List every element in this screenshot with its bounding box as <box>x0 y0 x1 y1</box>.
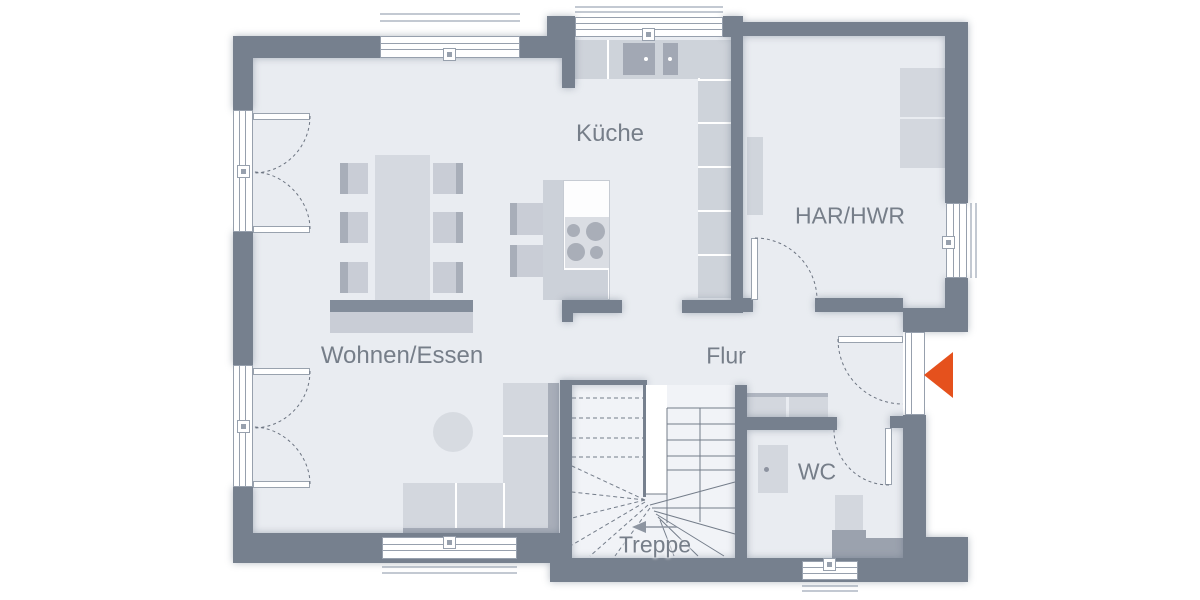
walls-layer <box>0 0 1200 600</box>
room-label-kueche: Küche <box>576 120 644 148</box>
wall-exterior-left-a <box>233 36 253 110</box>
wall-exterior-top-kitchen <box>723 16 743 37</box>
floor-plan: Küche HAR/HWR Wohnen/Essen Flur WC Trepp… <box>0 0 1200 600</box>
window-handle <box>443 48 456 61</box>
door-leaf <box>253 226 310 233</box>
wall-har-bottom <box>815 298 903 312</box>
stair-well <box>646 385 667 494</box>
wall-wc-top <box>747 417 837 430</box>
har-door-leaf <box>751 238 758 300</box>
room-label-har-hwr: HAR/HWR <box>795 203 905 230</box>
door-leaf <box>253 113 310 120</box>
wc-door-leaf <box>885 428 892 485</box>
door-handle <box>237 420 250 433</box>
room-label-wohnen-essen: Wohnen/Essen <box>321 342 483 370</box>
wall-step-kitchen <box>547 16 575 58</box>
room-label-treppe: Treppe <box>619 532 691 559</box>
room-label-wc: WC <box>798 459 836 486</box>
entrance-door-leaf <box>838 336 903 343</box>
wall-exterior-entry-below <box>903 415 926 537</box>
entrance-door-frame <box>905 332 925 415</box>
window-handle <box>443 536 456 549</box>
wall-kitchen-stub <box>562 313 573 322</box>
window-handle <box>823 558 836 571</box>
wall-staircase-right <box>735 385 747 563</box>
wall-return <box>562 58 575 88</box>
wall-wc-door-stub <box>890 416 903 428</box>
window-handle <box>642 28 655 41</box>
wall-kitchen-har <box>731 37 743 300</box>
wall-exterior-left-b <box>233 232 253 365</box>
door-leaf <box>253 368 310 375</box>
wall-staircase-left <box>560 380 572 563</box>
room-label-flur: Flur <box>706 343 746 370</box>
door-leaf <box>253 481 310 488</box>
wall-har-bottom-left <box>743 298 753 312</box>
wall-staircase-top-edge <box>560 380 647 385</box>
wall-exterior-bottom-stairs <box>550 558 747 582</box>
wall-exterior-right-upper <box>945 36 968 203</box>
door-handle <box>237 165 250 178</box>
wall-exterior-right-lower <box>945 278 968 312</box>
wall-entry-corner <box>903 308 968 332</box>
wall-kitchen-bottom-left <box>562 300 622 313</box>
wall-exterior-top-har <box>743 22 968 36</box>
wall-kitchen-bottom-right <box>682 300 743 313</box>
window-handle <box>942 236 955 249</box>
